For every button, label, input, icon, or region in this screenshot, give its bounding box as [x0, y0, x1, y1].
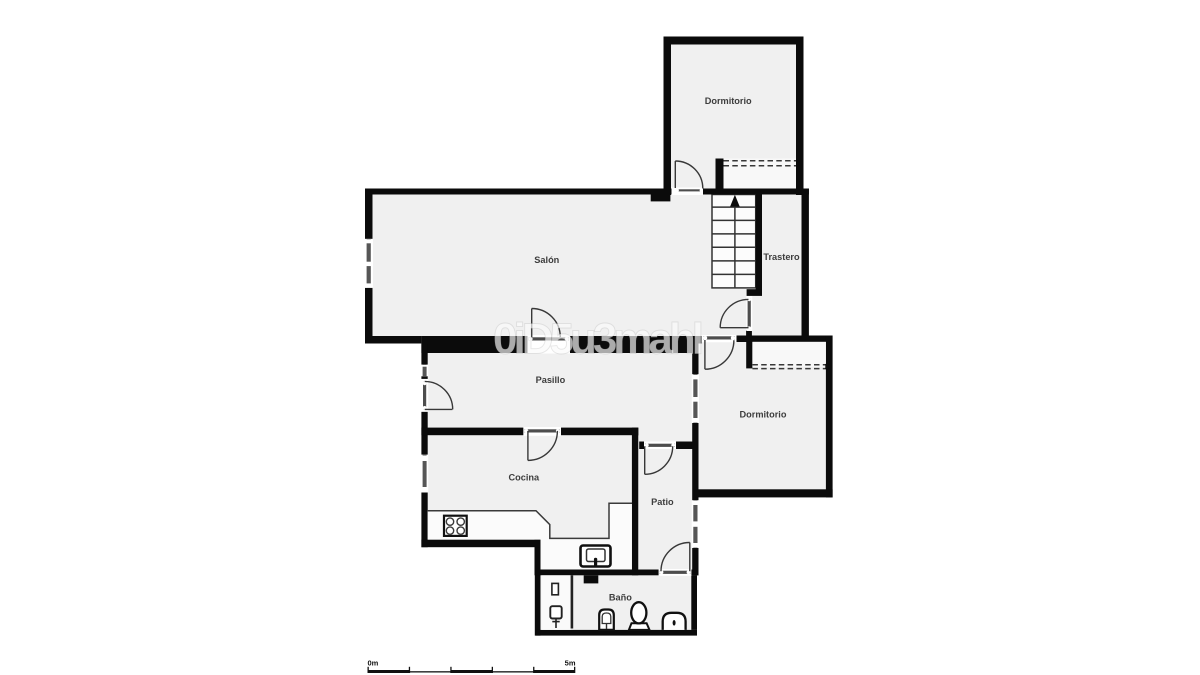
svg-text:Patio: Patio [651, 497, 674, 507]
svg-text:Salón: Salón [534, 255, 559, 265]
svg-text:Cocina: Cocina [508, 473, 540, 483]
svg-text:5m: 5m [565, 659, 576, 668]
svg-text:Pasillo: Pasillo [536, 375, 566, 385]
svg-text:Trastero: Trastero [763, 252, 800, 262]
svg-text:Dormitorio: Dormitorio [740, 410, 787, 420]
svg-text:0iD5u3mahl: 0iD5u3mahl [493, 315, 704, 364]
svg-text:Dormitorio: Dormitorio [705, 96, 752, 106]
svg-text:0m: 0m [368, 659, 379, 668]
svg-text:Baño: Baño [609, 593, 632, 603]
